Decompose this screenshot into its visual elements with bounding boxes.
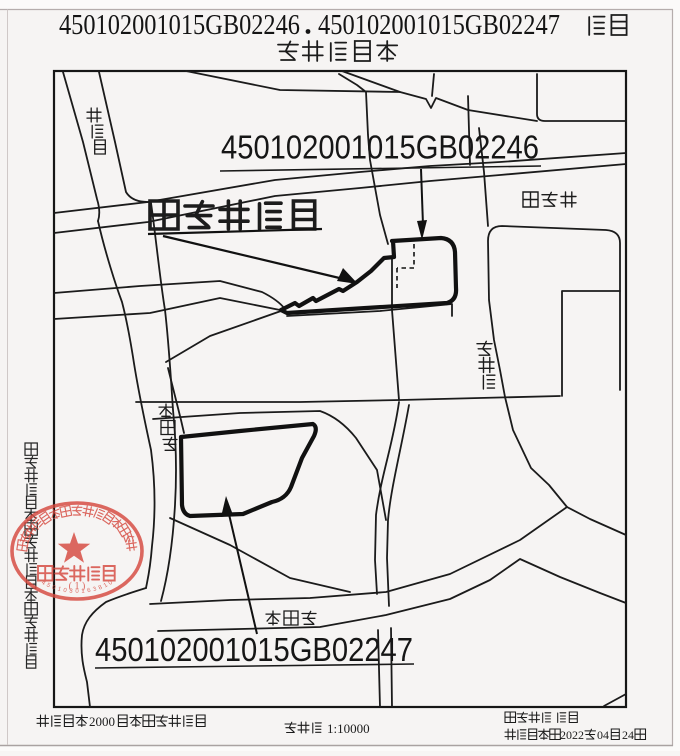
svg-text:2022: 2022 (560, 728, 584, 742)
svg-text:450102001015GB02247: 450102001015GB02247 (95, 631, 413, 668)
svg-text:04: 04 (597, 728, 609, 742)
svg-text:2000: 2000 (89, 714, 115, 729)
svg-text:1:10000: 1:10000 (327, 721, 370, 736)
svg-text:24: 24 (622, 728, 634, 742)
svg-text:450102001015GB02246: 450102001015GB02246 (221, 129, 539, 166)
svg-text:450102001015GB02246: 450102001015GB02246 (59, 9, 300, 41)
svg-text:450102001015GB02247: 450102001015GB02247 (318, 9, 560, 41)
